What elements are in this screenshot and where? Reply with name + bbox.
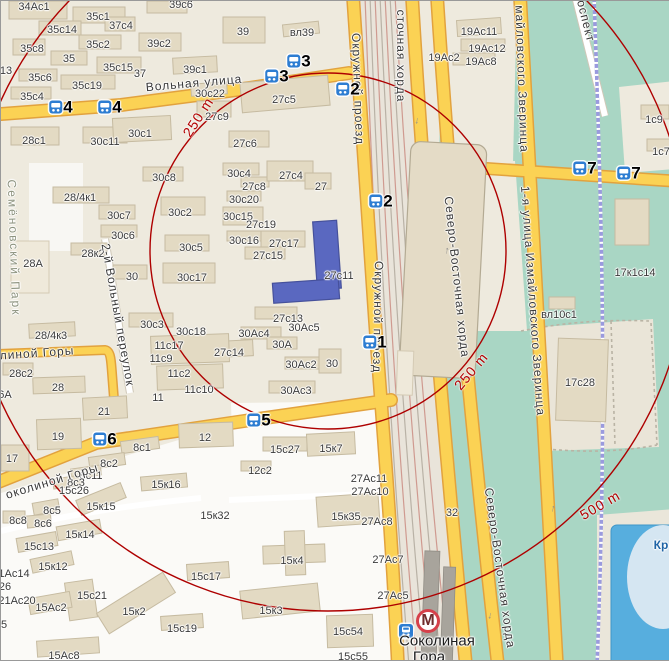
building-label: 15с17 — [191, 571, 221, 583]
building-label: 35 — [63, 53, 75, 65]
bus-stop-marker-7[interactable]: 7 — [617, 165, 640, 182]
building-label: 15к14 — [65, 529, 94, 541]
building-label: 12с2 — [248, 465, 272, 477]
building-label: 11с2 — [167, 368, 190, 380]
building-label: 15Ас8 — [48, 650, 79, 661]
building-label: 27с6 — [233, 138, 257, 150]
bus-stop-marker-3[interactable]: 3 — [265, 68, 288, 85]
building-label: 30с20 — [229, 194, 259, 206]
building-label: 35с2 — [86, 39, 110, 51]
bus-stop-number: 3 — [301, 53, 310, 70]
bus-stop-marker-6[interactable]: 6 — [93, 431, 116, 448]
building-label: 35с19 — [72, 80, 102, 92]
building-label: 15Ас2 — [35, 602, 66, 614]
building-label: 30с17 — [177, 272, 207, 284]
bus-stop-marker-2[interactable]: 2 — [336, 81, 359, 98]
building-label: 30с6 — [111, 230, 135, 242]
building-label: 15с26 — [59, 485, 89, 497]
bus-icon — [336, 83, 349, 96]
building-label: 30Ас5 — [288, 322, 319, 334]
building-label: 15к16 — [151, 479, 180, 491]
building-label: 15к3 — [259, 605, 282, 617]
building-label: 37 — [134, 68, 146, 80]
building-label: 28с2 — [9, 368, 33, 380]
bus-stop-number: 7 — [587, 160, 596, 177]
building-label: 28с1 — [22, 135, 46, 147]
building-label: 30с4 — [227, 168, 251, 180]
building-label: 15с13 — [24, 541, 54, 553]
bus-icon — [363, 336, 376, 349]
bus-icon — [573, 162, 586, 175]
bus-stop-number: 4 — [63, 99, 72, 116]
building-label: 27с4 — [279, 170, 303, 182]
building-label: 1с9 — [645, 114, 663, 126]
building-label: 15с54 — [333, 626, 363, 638]
building-label: 27с14 — [214, 347, 244, 359]
building-label: 30с18 — [176, 326, 206, 338]
building-label: 17 — [6, 453, 18, 465]
building-label: 15к35 — [331, 511, 360, 523]
bus-stop-marker-3[interactable]: 3 — [287, 53, 310, 70]
building-label: 27 — [315, 181, 327, 193]
building-label: 19Ас11 — [461, 26, 498, 38]
building-label: 15к15 — [86, 501, 115, 513]
bus-stop-number: 1 — [377, 334, 386, 351]
bus-stop-marker-4[interactable]: 4 — [49, 99, 72, 116]
building-label: 15к2 — [122, 606, 145, 618]
bus-icon — [287, 55, 300, 68]
building-label: 21Ас20 — [0, 595, 36, 607]
building-label: 37с4 — [109, 20, 133, 32]
street-label: Кр — [654, 538, 669, 552]
building-label: 30с16 — [229, 235, 259, 247]
building-label: 13 — [0, 65, 12, 77]
building-label: 8с1 — [133, 442, 151, 454]
building-label: 30с8 — [152, 172, 176, 184]
bus-stop-number: 4 — [112, 99, 121, 116]
bus-stop-number: 3 — [279, 68, 288, 85]
building-label: 35с4 — [20, 91, 44, 103]
street-label: сточная хорда — [394, 10, 408, 103]
building-label: 27Ас8 — [361, 516, 392, 528]
metro-icon-letter: М — [421, 612, 434, 630]
bus-stop-number: 7 — [631, 165, 640, 182]
building-label: 34Ас1 — [18, 1, 49, 13]
building-label: 39с6 — [169, 0, 193, 11]
building-label: 35с1 — [86, 11, 110, 23]
map-canvas[interactable]: 34Ас135с137с435с1439с635с835с239с23535с1… — [0, 0, 669, 661]
building-label: 5 — [1, 619, 7, 631]
building-label: 15с55 — [338, 651, 368, 661]
building-label: 35с6 — [28, 72, 52, 84]
building-label: 8с8 — [9, 515, 27, 527]
bus-stop-number: 2 — [383, 193, 392, 210]
building-label: 30с1 — [128, 128, 152, 140]
building-label: 30с2 — [168, 207, 192, 219]
building-label: 27с8 — [242, 181, 266, 193]
building-label: 8с2 — [100, 458, 118, 470]
building-label: 28/4к1 — [64, 192, 96, 204]
bus-stop-marker-5[interactable]: 5 — [247, 412, 270, 429]
building-label: 28/4к3 — [35, 330, 67, 342]
building-label: 15к4 — [280, 555, 303, 567]
bus-stop-number: 5 — [261, 412, 270, 429]
building-label: 27с19 — [246, 219, 276, 231]
bus-icon — [93, 433, 106, 446]
metro-icon[interactable]: М — [416, 609, 440, 633]
bus-icon — [369, 195, 382, 208]
building-label: 15с21 — [77, 590, 107, 602]
building-label: 11с9 — [149, 353, 172, 365]
street-label: Окружной проезд — [370, 261, 386, 373]
bus-stop-number: 6 — [107, 431, 116, 448]
building-label: 19Ас2 — [428, 52, 459, 64]
building-label: вл10с1 — [541, 309, 577, 321]
building-label: 19Ас12 — [468, 43, 505, 55]
building-label: 21 — [98, 406, 110, 418]
bus-stop-marker-1[interactable]: 1 — [363, 334, 386, 351]
building-label: 15с27 — [270, 444, 300, 456]
building-label: 30с11 — [90, 136, 119, 148]
building-label: 6А — [0, 389, 12, 401]
building-label: 11с10 — [184, 384, 213, 396]
building-label: 30Ас2 — [285, 359, 316, 371]
bus-stop-marker-7[interactable]: 7 — [573, 160, 596, 177]
building-label: 15к32 — [200, 510, 229, 522]
bus-stop-marker-2[interactable]: 2 — [369, 193, 392, 210]
building-label: 19Ас8 — [465, 56, 496, 68]
building-label: 8с5 — [43, 505, 61, 517]
building-label: 28 — [52, 382, 64, 394]
metro-station-name-line2[interactable]: Гора — [413, 649, 445, 661]
building-label: 11 — [152, 392, 163, 404]
building-label: 27Ас10 — [351, 486, 388, 498]
courtyard — [29, 163, 83, 251]
building-label: 30с7 — [107, 210, 131, 222]
metro-station-name-line1[interactable]: Соколиная — [399, 633, 475, 650]
building-label: 30 — [126, 271, 138, 283]
building-label: 27Ас7 — [372, 554, 403, 566]
bus-icon — [247, 414, 260, 427]
building-label: 32 — [446, 507, 458, 519]
building-label: 1Ас14 — [0, 568, 30, 580]
building-label: 11с17 — [154, 340, 183, 352]
building-label: 15с19 — [167, 623, 197, 635]
bus-icon — [49, 101, 62, 114]
bus-icon — [265, 70, 278, 83]
building-label: 17к1с14 — [615, 267, 656, 279]
building-label: 39с2 — [147, 38, 171, 50]
building-label: 30с5 — [179, 242, 203, 254]
building-label: 30Ас4 — [238, 328, 269, 340]
building-label: 15к7 — [319, 443, 342, 455]
bus-icon — [617, 167, 630, 180]
building-label: 27Ас11 — [351, 473, 388, 485]
building-label: 27Ас5 — [377, 590, 408, 602]
building-label: 35с8 — [20, 43, 44, 55]
building-label: вл39 — [290, 27, 314, 39]
building-label: 30Ас3 — [280, 385, 311, 397]
bus-icon — [98, 101, 111, 114]
building-label: 30 — [326, 358, 338, 370]
building-label: 28А — [23, 258, 43, 270]
building-label: 8с6 — [34, 518, 52, 530]
building-label: 27с11 — [324, 270, 353, 282]
building-label: 39 — [237, 26, 249, 38]
building-label: 26 — [0, 581, 11, 593]
building-label: 30А — [272, 339, 292, 351]
block-northeast — [619, 81, 669, 173]
bus-stop-marker-4[interactable]: 4 — [98, 99, 121, 116]
building-label: 27с15 — [253, 250, 283, 262]
building-label: 27с17 — [269, 238, 299, 250]
building-label: 27с5 — [272, 94, 296, 106]
building-label: 17с28 — [565, 377, 595, 389]
building-label: 1с7 — [652, 146, 669, 158]
building-label: 35с14 — [47, 24, 77, 36]
bus-stop-number: 2 — [350, 81, 359, 98]
building-label: 19 — [52, 431, 64, 443]
building-label: 15к12 — [38, 561, 67, 573]
building-label: 35с15 — [103, 62, 133, 74]
building-label: 12 — [199, 432, 211, 444]
building-label: 30с3 — [140, 319, 164, 331]
